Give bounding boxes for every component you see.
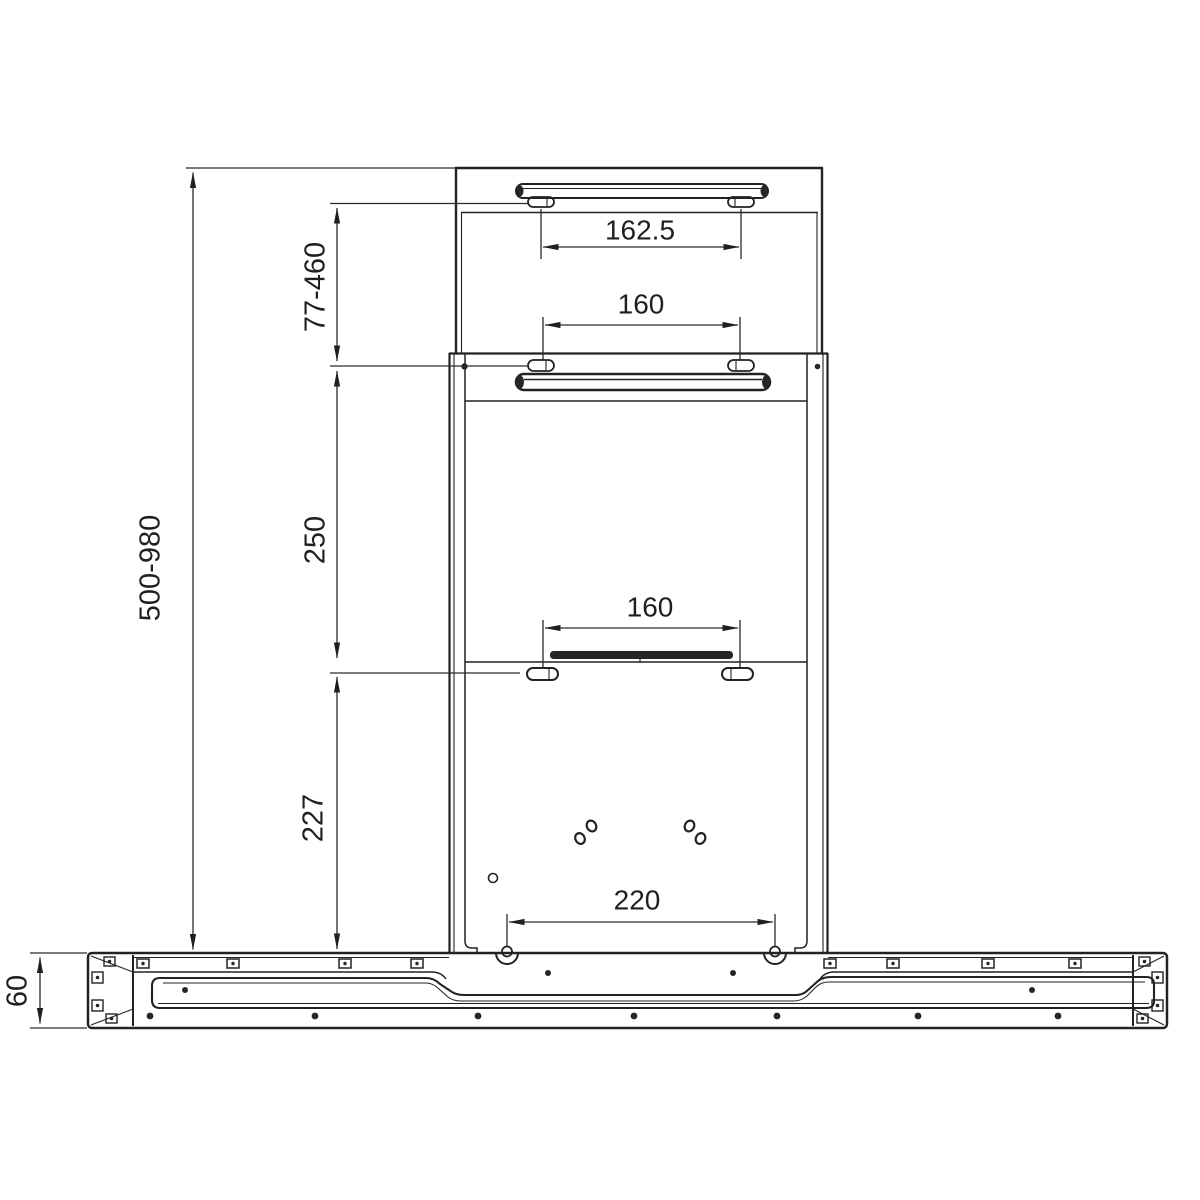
dimension-overall-height: 500-980 [135, 168, 455, 950]
dimension-mid-height: 250 [300, 371, 337, 658]
dim-label-keyhole-spacing: 220 [614, 884, 661, 915]
pilot-hole [489, 874, 498, 883]
hood-screw-slot-left [527, 668, 558, 680]
hood-end-cap-left [91, 955, 133, 1026]
dim-label-top-bracket-holes: 162.5 [605, 214, 675, 245]
upper-chimney-section [449, 168, 828, 354]
dim-label-mid-height: 250 [300, 516, 332, 564]
technical-drawing-page: 500-980 77-460 250 227 162.5 160 160 [0, 0, 1200, 1200]
dimension-upper-holes: 160 [543, 288, 740, 360]
dimension-top-bracket-holes: 162.5 [541, 209, 741, 259]
hood-body [88, 947, 1167, 1029]
hood-mounting-bracket [527, 651, 753, 680]
dimension-keyhole-spacing: 220 [507, 884, 775, 947]
dimension-hood-height: 60 [2, 953, 87, 1028]
wall-hook-left [573, 819, 598, 846]
keyhole-slot-right [764, 947, 786, 965]
mid-screw-slot-left [528, 360, 554, 371]
dim-label-overall-height: 500-980 [135, 515, 167, 621]
mid-screw-slot-right [728, 360, 754, 371]
side-screw-right [815, 364, 821, 370]
wall-hook-right [683, 819, 707, 846]
hood-end-cap-right [1133, 955, 1164, 1026]
cooker-hood-installation-drawing: 500-980 77-460 250 227 162.5 160 160 [0, 0, 1200, 1200]
dim-label-lower-holes: 160 [627, 591, 674, 622]
dim-label-lower-height: 227 [298, 794, 330, 842]
top-strip-screws [137, 959, 1081, 968]
mid-mounting-bracket [516, 360, 770, 390]
hood-screw-slot-right [722, 668, 753, 680]
dimension-lower-height: 227 [298, 673, 520, 949]
dim-label-upper-height: 77-460 [300, 242, 332, 332]
dim-label-upper-holes: 160 [618, 288, 665, 319]
top-mounting-bracket [516, 184, 768, 207]
dimension-upper-height: 77-460 [300, 204, 528, 367]
dim-label-hood-height: 60 [2, 975, 34, 1007]
keyhole-slot-left [496, 947, 518, 965]
